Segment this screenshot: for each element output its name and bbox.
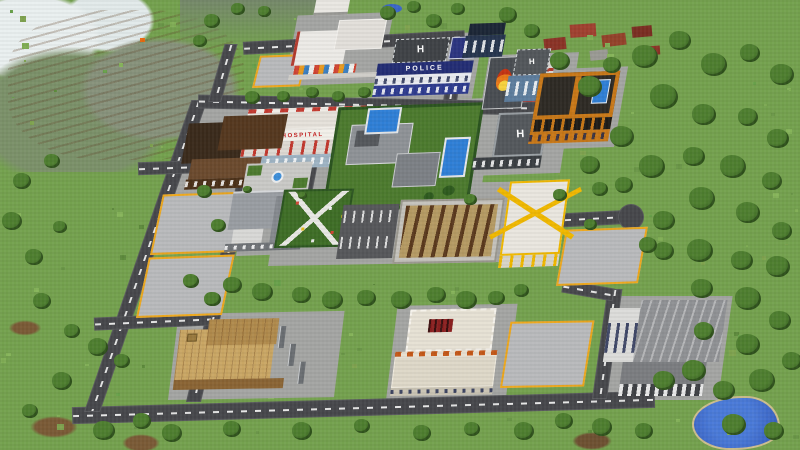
forest-tree [762,172,782,190]
forest-tree [632,45,658,68]
forest-tree [33,293,51,309]
forest-tree [689,187,715,210]
forest-tree [223,277,242,294]
forest-tree [44,154,60,168]
forest-tree [231,3,245,15]
forest-tree [772,222,792,240]
forest-tree [332,91,345,102]
farm-rows [399,204,498,258]
forest-tree [413,425,431,441]
crate [187,334,198,342]
forest-tree [64,324,80,338]
forest-tree [245,91,260,104]
forest-tree [722,414,746,435]
forest-tree [243,186,252,194]
forest-tree [407,1,421,13]
rooftop-helipad-h-marker: H [516,129,525,140]
tower-facade [472,156,542,170]
forest-tree [578,76,602,97]
forest-tree [701,53,727,76]
forest-tree [736,202,760,223]
police-station: H POLICE [372,36,478,97]
forest-tree [464,194,477,205]
flower-dots [296,202,300,205]
forest-tree [782,352,800,370]
forest-tree [488,291,505,306]
glass-tower [462,22,508,58]
forest-tree [639,155,665,178]
forest-tree [736,334,760,355]
scaffold-post [297,362,306,384]
forest-tree [639,237,657,253]
road-shops-west [208,44,238,102]
forest-tree [22,404,38,418]
forest-tree [162,424,182,442]
forest-tree [451,3,465,15]
wood-terrace [206,318,279,345]
forest-tree [258,6,271,17]
red-roof-deco [428,319,454,332]
forest-tree [197,185,212,198]
greenhouse-farm [392,198,505,264]
forest-tree [610,126,634,147]
minecraft-city-overview[interactable]: H POLICE HOSPI [0,0,800,450]
forest-tree [653,211,675,230]
forest-tree [524,24,540,38]
police-helipad-h-marker: H [417,45,425,55]
forest-tree [354,419,370,433]
glass-tower-facade [462,34,506,58]
forest-tree [731,251,753,270]
parking-lot [336,204,400,259]
forest-tree [603,57,621,73]
forest-tree [211,219,226,232]
parking-stalls [339,236,393,249]
forest-tree [204,292,221,307]
forest-tree [740,44,760,62]
forest-tree [464,422,480,436]
forest-tree [52,372,72,390]
forest-tree [133,413,151,429]
modern-canopy [231,229,263,244]
tower-helipad-h-marker: H [529,58,535,66]
forest-tree [193,35,207,47]
forest-tree [694,322,714,340]
lot-southeast-lower [500,320,594,388]
forest-tree [749,369,775,392]
forest-tree [654,242,674,260]
forest-tree [357,290,376,307]
forest-tree [204,14,220,28]
shop-roof [333,18,387,50]
forest-tree [592,418,612,436]
forest-tree [456,291,477,309]
forest-tree [669,31,691,50]
forest-tree [358,87,371,98]
shop-buildings [288,18,387,80]
forest-tree [93,421,115,440]
villa-roof-2 [391,152,440,188]
forest-tree [653,371,675,390]
forest-tree [2,212,22,230]
forest-tree [322,291,343,309]
large-white-building [390,308,513,396]
forest-tree [391,291,412,309]
forest-tree [427,287,446,304]
forest-tree [555,413,573,429]
forest-tree [292,287,311,304]
forest-tree [766,256,790,277]
brown-roof-mid [217,114,288,150]
wooden-construction-site [172,317,339,396]
forest-tree [13,173,31,189]
forest-tree [682,360,706,381]
forest-tree [615,177,633,193]
forest-tree [88,338,108,356]
forest-tree [499,7,517,23]
forest-tree [692,104,716,125]
forest-tree [292,422,312,440]
swimming-pool [364,107,402,134]
forest-tree [687,239,713,262]
wood-dark-edge [173,378,284,390]
forest-tree [735,287,761,310]
forest-tree [584,219,597,230]
forest-tree [580,156,600,174]
forest-tree [298,192,307,200]
city-blocks: H POLICE HOSPI [0,0,800,450]
forest-tree [223,421,241,437]
construction-facade [498,254,560,268]
forest-tree [306,87,319,98]
forest-tree [553,189,567,201]
forest-tree [183,274,199,288]
forest-tree [769,311,791,330]
small-white-building [312,0,350,22]
forest-tree [767,129,789,148]
forest-tree [592,182,608,196]
forest-tree [650,84,678,109]
forest-tree [738,108,758,126]
forest-tree [770,64,794,85]
police-helipad: H [392,37,450,63]
forest-tree [720,155,746,178]
forest-tree [514,284,529,297]
forest-tree [53,221,67,233]
forest-tree [683,147,705,166]
white-roof-lower [391,355,497,388]
fountain-courtyard [242,162,313,192]
tower-helipad: H [513,48,552,75]
small-roof [313,0,350,16]
forest-tree [380,6,396,20]
forest-tree [764,422,784,440]
scaffold-post [278,326,287,348]
forest-tree [252,283,273,301]
forest-tree [277,91,290,102]
forest-tree [25,249,43,265]
forest-tree [426,14,442,28]
scaffold-post [287,344,296,366]
forest-tree [691,279,713,298]
parking-stalls [343,210,397,223]
courtyard-green [292,178,308,189]
forest-tree [635,423,653,439]
forest-tree [550,52,570,70]
forest-tree [713,381,735,400]
orange-apartment [528,71,620,144]
forest-tree [514,422,534,440]
courtyard-green [247,165,263,176]
forest-tree [114,354,130,368]
